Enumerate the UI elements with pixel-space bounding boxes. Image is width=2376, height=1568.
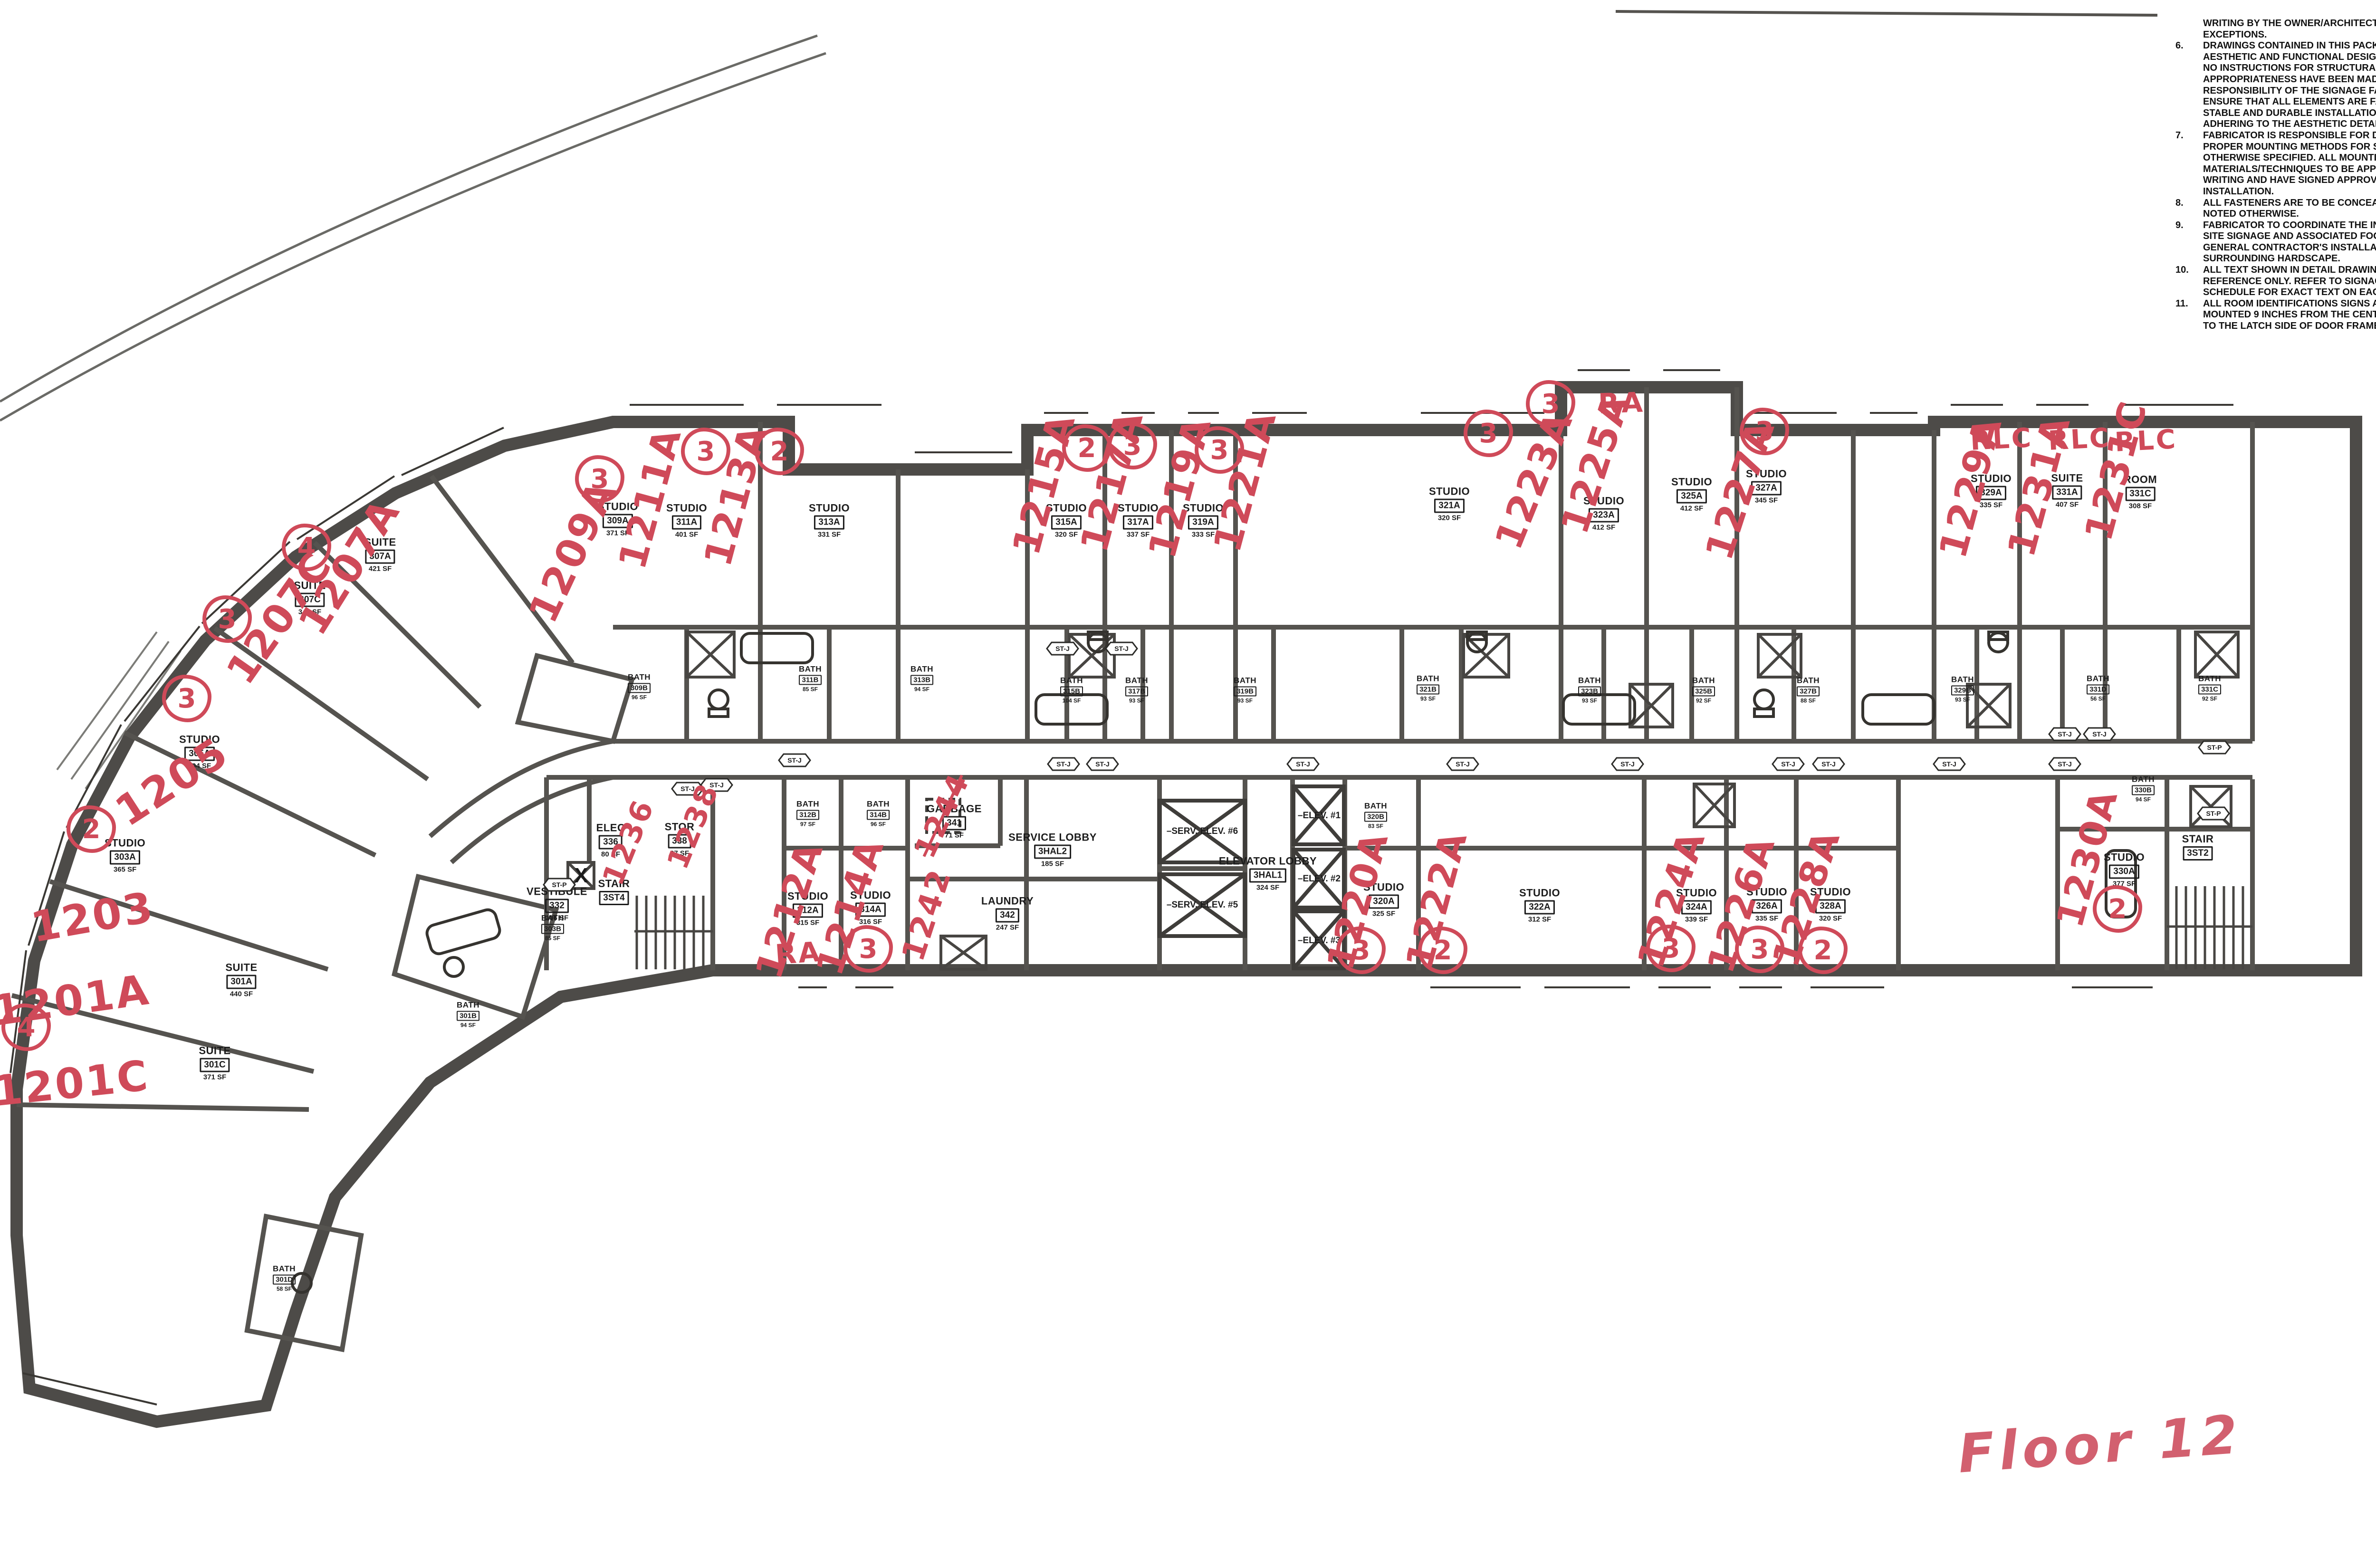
red-room-annotation: RA xyxy=(1598,386,1645,420)
scanned-floorplan-sheet: STUDIO309A371 SFSUITE307A421 SFSUITE307C… xyxy=(0,0,2376,1568)
occupancy-circle: 3 xyxy=(1195,426,1244,474)
unit-area: 371 SF xyxy=(203,1073,226,1081)
unit-area: 94 SF xyxy=(914,686,929,693)
unit-number: 313A xyxy=(814,516,844,530)
unit-number: 321A xyxy=(1434,499,1464,513)
note-text: FABRICATOR TO COORDINATE THE INSTALLATSI… xyxy=(2203,220,2376,265)
note-line: APPROPRIATENESS HAVE BEEN MADE. IT IS T xyxy=(2203,74,2376,86)
occupancy-circle: 3 xyxy=(1646,925,1696,972)
occupancy-circle: 3 xyxy=(681,428,730,475)
bath-label: BATH330B94 SF xyxy=(2132,775,2155,803)
unit-area: 312 SF xyxy=(1528,916,1551,924)
unit-area: 93 SF xyxy=(1237,698,1253,704)
note-line: INSTALLATION. xyxy=(2203,186,2376,198)
note-text: ALL ROOM IDENTIFICATIONS SIGNS ARE TO BM… xyxy=(2203,298,2376,332)
note-line: WRITING AND HAVE SIGNED APPROVAL PRIO xyxy=(2203,175,2376,186)
unit-area: 88 SF xyxy=(1801,698,1816,704)
unit-area: 94 SF xyxy=(2136,796,2151,803)
red-room-annotation: RLC xyxy=(1969,422,2033,457)
bath-label: BATH317B93 SF xyxy=(1125,676,1148,704)
unit-type: BATH xyxy=(1234,676,1256,686)
corridor-tag-st-j: ST-J xyxy=(1446,757,1479,771)
unit-type: BATH xyxy=(1125,676,1148,686)
note-item: 7.FABRICATOR IS RESPONSIBLE FOR DETERMIN… xyxy=(2175,130,2376,198)
svg-text:ST-J: ST-J xyxy=(2058,760,2072,768)
unit-number: 329B xyxy=(1951,686,1974,696)
occupancy-circle: 2 xyxy=(2093,885,2142,933)
unit-number: 330B xyxy=(2132,785,2155,795)
unit-area: 320 SF xyxy=(1438,514,1461,522)
unit-label: STUDIO313A331 SF xyxy=(809,502,850,539)
unit-number: 330A xyxy=(2109,865,2139,879)
unit-number: 301C xyxy=(200,1058,230,1072)
svg-text:ST-J: ST-J xyxy=(1095,760,1110,768)
elevator-label: –ELEV. #1 xyxy=(1298,811,1341,821)
bath-label: BATH312B97 SF xyxy=(796,800,819,828)
unit-label: STUDIO325A412 SF xyxy=(1671,476,1712,513)
unit-number: 325A xyxy=(1677,489,1706,504)
svg-text:ST-J: ST-J xyxy=(1781,760,1795,768)
unit-number: 301D xyxy=(273,1275,296,1285)
unit-label: STUDIO311A401 SF xyxy=(666,502,707,539)
unit-type: BATH xyxy=(799,665,822,674)
unit-type: STUDIO xyxy=(666,502,707,515)
bath-label: BATH325B92 SF xyxy=(1692,676,1715,704)
note-line: GENERAL CONTRACTOR'S INSTALLATION OF T xyxy=(2203,242,2376,254)
bath-label: BATH303B85 SF xyxy=(541,914,564,942)
unit-type: BATH xyxy=(867,800,890,809)
note-item: 6.DRAWINGS CONTAINED IN THIS PACKAGE ARA… xyxy=(2175,40,2376,130)
bath-label: BATH301B94 SF xyxy=(457,1001,479,1029)
unit-type: BATH xyxy=(796,800,819,809)
unit-number: 331C xyxy=(2198,685,2221,695)
unit-type: BATH xyxy=(2087,674,2109,684)
unit-type: SUITE xyxy=(199,1045,230,1057)
unit-type: BATH xyxy=(273,1264,296,1274)
occupancy-circle: 4 xyxy=(1,1004,51,1051)
unit-label: SERVICE LOBBY3HAL2185 SF xyxy=(1008,832,1097,868)
svg-text:ST-P: ST-P xyxy=(2206,810,2221,817)
signage-notes: WRITING BY THE OWNER/ARCHITECT. NOEXCEPT… xyxy=(2175,18,2376,332)
corridor-tag-st-p: ST-P xyxy=(543,878,576,892)
unit-number: 342 xyxy=(996,908,1019,923)
unit-number: 322A xyxy=(1524,900,1554,915)
bath-label: BATH329B93 SF xyxy=(1951,675,1974,703)
bath-label: BATH314B96 SF xyxy=(867,800,890,828)
unit-area: 407 SF xyxy=(2056,501,2079,509)
unit-number: 301A xyxy=(226,975,256,989)
unit-area: 401 SF xyxy=(675,531,698,539)
unit-type: BATH xyxy=(1692,676,1715,686)
unit-type: STUDIO xyxy=(1429,486,1470,498)
occupancy-circle: 3 xyxy=(1740,408,1789,455)
note-line: ALL ROOM IDENTIFICATIONS SIGNS ARE TO B xyxy=(2203,298,2376,310)
svg-text:ST-J: ST-J xyxy=(1942,760,1956,768)
unit-type: BATH xyxy=(1060,676,1083,686)
corridor-tag-st-j: ST-J xyxy=(1046,641,1079,656)
corridor-tag-st-j: ST-J xyxy=(1105,641,1138,656)
elevator-label: –SERV. ELEV. #6 xyxy=(1167,826,1238,837)
unit-type: BATH xyxy=(1797,676,1820,686)
unit-area: 92 SF xyxy=(1696,698,1711,704)
unit-type: BATH xyxy=(2198,674,2221,684)
corridor-tag-st-j: ST-J xyxy=(1772,757,1805,771)
unit-area: 85 SF xyxy=(545,935,560,942)
unit-number: 325B xyxy=(1692,687,1715,697)
unit-type: BATH xyxy=(1951,675,1974,685)
unit-area: 93 SF xyxy=(1582,698,1597,704)
occupancy-circle: 4 xyxy=(282,524,331,571)
corridor-tag-st-j: ST-J xyxy=(1611,757,1644,771)
note-number: 6. xyxy=(2175,40,2203,52)
occupancy-circle: 2 xyxy=(67,805,116,853)
note-line: TO THE LATCH SIDE OF DOOR FRAME. xyxy=(2203,321,2376,332)
bath-label: BATH311B85 SF xyxy=(799,665,822,693)
site-curve-inner xyxy=(0,53,826,421)
unit-number: 327B xyxy=(1797,687,1820,697)
note-item: 10.ALL TEXT SHOWN IN DETAIL DRAWINGS IS … xyxy=(2175,265,2376,298)
unit-area: 412 SF xyxy=(1680,505,1703,513)
note-number: 9. xyxy=(2175,220,2203,231)
occupancy-circle: 3 xyxy=(202,595,252,643)
unit-area: 365 SF xyxy=(114,866,136,874)
unit-type: BATH xyxy=(628,673,651,682)
occupancy-circle: 3 xyxy=(1464,410,1513,457)
unit-type: BATH xyxy=(1364,802,1387,811)
note-line: ENSURE THAT ALL ELEMENTS ARE FABRICATE xyxy=(2203,96,2376,108)
unit-label: ELEVATOR LOBBY3HAL1324 SF xyxy=(1219,855,1317,892)
unit-number: 312B xyxy=(796,810,819,820)
svg-text:ST-J: ST-J xyxy=(1296,760,1310,768)
corridor-tag-st-j: ST-J xyxy=(2048,757,2081,771)
note-text: ALL FASTENERS ARE TO BE CONCEALED UNLENO… xyxy=(2203,198,2376,220)
note-line: ALL FASTENERS ARE TO BE CONCEALED UNLE xyxy=(2203,198,2376,209)
unit-type: BATH xyxy=(541,914,564,923)
unit-number: 311B xyxy=(799,675,821,685)
unit-area: 92 SF xyxy=(2202,696,2217,702)
svg-text:ST-J: ST-J xyxy=(1620,760,1635,768)
unit-type: BATH xyxy=(2132,775,2155,784)
occupancy-circle: 3 xyxy=(1336,927,1386,974)
unit-type: LAUNDRY xyxy=(981,895,1034,908)
unit-area: 324 SF xyxy=(1256,884,1279,892)
unit-type: SUITE xyxy=(225,962,257,974)
elevator-label: –ELEV. #2 xyxy=(1298,874,1341,884)
svg-text:ST-J: ST-J xyxy=(1821,760,1836,768)
unit-type: BATH xyxy=(1417,674,1439,684)
unit-area: 185 SF xyxy=(1041,860,1064,868)
unit-number: 315B xyxy=(1060,687,1083,697)
unit-number: 313B xyxy=(910,675,933,685)
unit-number: 303A xyxy=(110,851,140,865)
occupancy-circle: 2 xyxy=(1418,927,1467,974)
unit-type: STUDIO xyxy=(1519,887,1560,899)
scan-edge-top xyxy=(1616,11,2157,15)
corridor-tag-st-j: ST-J xyxy=(1933,757,1966,771)
corridor-tag-st-p: ST-P xyxy=(2197,806,2230,821)
note-intro-line: WRITING BY THE OWNER/ARCHITECT. NO xyxy=(2203,18,2376,29)
note-item: 11.ALL ROOM IDENTIFICATIONS SIGNS ARE TO… xyxy=(2175,298,2376,332)
unit-area: 104 SF xyxy=(1063,698,1081,704)
bath-label: BATH331C92 SF xyxy=(2198,674,2221,702)
corridor-tag-st-j: ST-J xyxy=(2083,727,2116,741)
red-room-annotation: RLC xyxy=(2114,424,2178,458)
note-number: 10. xyxy=(2175,265,2203,276)
note-number: 11. xyxy=(2175,298,2203,310)
corridor-tag-st-j: ST-J xyxy=(778,753,811,767)
note-text: FABRICATOR IS RESPONSIBLE FOR DETERMINPR… xyxy=(2203,130,2376,198)
site-curve-outer xyxy=(0,36,817,402)
svg-text:ST-P: ST-P xyxy=(552,881,566,889)
note-line: REFERENCE ONLY. REFER TO SIGNAGE MESS xyxy=(2203,276,2376,287)
svg-text:ST-P: ST-P xyxy=(2207,744,2222,751)
unit-label: STUDIO322A312 SF xyxy=(1519,887,1560,924)
unit-area: 93 SF xyxy=(1420,696,1436,702)
unit-type: BATH xyxy=(910,665,933,674)
unit-type: BATH xyxy=(1578,676,1601,686)
unit-label: LAUNDRY342247 SF xyxy=(981,895,1034,932)
unit-type: SERVICE LOBBY xyxy=(1008,832,1097,844)
svg-text:ST-J: ST-J xyxy=(1055,645,1070,652)
occupancy-circle: 3 xyxy=(1735,926,1784,973)
corridor-tag-st-j: ST-J xyxy=(1286,757,1320,771)
bath-label: BATH319B93 SF xyxy=(1234,676,1256,704)
bath-label: BATH323B93 SF xyxy=(1578,676,1601,704)
unit-number: 311A xyxy=(672,516,701,530)
unit-number: 320B xyxy=(1364,812,1387,822)
occupancy-circle: 3 xyxy=(1526,380,1575,428)
note-item: 8.ALL FASTENERS ARE TO BE CONCEALED UNLE… xyxy=(2175,198,2376,220)
note-number: 7. xyxy=(2175,130,2203,142)
unit-area: 96 SF xyxy=(871,821,886,828)
unit-number: 301B xyxy=(457,1011,479,1021)
unit-area: 83 SF xyxy=(1368,823,1383,830)
note-line: SURROUNDING HARDSCAPE. xyxy=(2203,253,2376,265)
note-line: OTHERWISE SPECIFIED. ALL MOUNTING xyxy=(2203,153,2376,164)
unit-number: 303B xyxy=(541,924,564,934)
occupancy-circle: 3 xyxy=(843,925,893,973)
unit-type: STAIR xyxy=(2182,833,2214,845)
red-room-annotation: RA xyxy=(774,936,823,971)
unit-area: 93 SF xyxy=(1955,697,1970,703)
unit-area: 85 SF xyxy=(803,686,818,693)
note-number: 8. xyxy=(2175,198,2203,209)
occupancy-circle: 3 xyxy=(162,675,211,722)
note-line: AESTHETIC AND FUNCTIONAL DESIGN INTENT xyxy=(2203,52,2376,63)
svg-text:ST-J: ST-J xyxy=(787,756,802,764)
unit-number: 331D xyxy=(2087,685,2109,695)
occupancy-circle: 3 xyxy=(575,455,624,503)
note-line: FABRICATOR IS RESPONSIBLE FOR DETERMIN xyxy=(2203,130,2376,142)
note-line: ADHERING TO THE AESTHETIC DETAILS INDIC xyxy=(2203,119,2376,130)
bath-label: BATH301D58 SF xyxy=(273,1264,296,1292)
note-line: STABLE AND DURABLE INSTALLATION WHILE xyxy=(2203,108,2376,119)
unit-area: 97 SF xyxy=(800,821,815,828)
unit-label: SUITE301A440 SF xyxy=(225,962,257,998)
unit-number: 314B xyxy=(867,810,890,820)
corridor-tag-st-j: ST-J xyxy=(2048,727,2081,741)
unit-area: 308 SF xyxy=(2129,502,2152,510)
unit-type: STUDIO xyxy=(1671,476,1712,488)
bath-label: BATH331D56 SF xyxy=(2087,674,2109,702)
unit-number: 321B xyxy=(1417,685,1439,695)
unit-area: 440 SF xyxy=(230,990,253,998)
unit-area: 247 SF xyxy=(996,924,1019,932)
unit-area: 56 SF xyxy=(2090,696,2106,702)
unit-number: 332 xyxy=(545,899,569,913)
note-line: NO INSTRUCTIONS FOR STRUCTURAL xyxy=(2203,63,2376,74)
note-line: ALL TEXT SHOWN IN DETAIL DRAWINGS IS FO xyxy=(2203,265,2376,276)
note-line: MOUNTED 9 INCHES FROM THE CENTER OF T xyxy=(2203,309,2376,321)
note-line: MATERIALS/TECHNIQUES TO BE APPROVED I xyxy=(2203,164,2376,175)
unit-area: 94 SF xyxy=(460,1022,476,1029)
note-line: SITE SIGNAGE AND ASSOCIATED FOOTINGS W xyxy=(2203,231,2376,242)
red-room-annotation: RLC xyxy=(2047,422,2111,457)
svg-text:ST-J: ST-J xyxy=(1114,645,1129,652)
corridor-tag-st-j: ST-J xyxy=(1812,757,1845,771)
bath-label: BATH313B94 SF xyxy=(910,665,933,693)
bath-label: BATH321B93 SF xyxy=(1417,674,1439,702)
note-intro-line: EXCEPTIONS. xyxy=(2203,29,2376,41)
note-line: PROPER MOUNTING METHODS FOR SIGNS U xyxy=(2203,142,2376,153)
unit-number: 3ST2 xyxy=(2183,846,2213,860)
note-line: FABRICATOR TO COORDINATE THE INSTALLAT xyxy=(2203,220,2376,231)
note-text: ALL TEXT SHOWN IN DETAIL DRAWINGS IS FOR… xyxy=(2203,265,2376,298)
unit-number: 317B xyxy=(1125,687,1148,697)
unit-number: 319B xyxy=(1234,687,1256,697)
note-line: NOTED OTHERWISE. xyxy=(2203,209,2376,220)
occupancy-circle: 2 xyxy=(755,428,804,475)
note-line: SCHEDULE FOR EXACT TEXT ON EACH SIGN. xyxy=(2203,287,2376,298)
unit-area: 331 SF xyxy=(818,531,841,539)
svg-text:ST-J: ST-J xyxy=(2092,730,2107,738)
floorplan-drawing xyxy=(0,0,2376,1568)
unit-area: 58 SF xyxy=(277,1286,292,1292)
unit-number: 3ST4 xyxy=(599,891,629,905)
occupancy-circle: 2 xyxy=(1798,927,1848,974)
unit-area: 93 SF xyxy=(1129,698,1144,704)
bath-label: BATH320B83 SF xyxy=(1364,802,1387,830)
plan-mark: X xyxy=(574,864,588,888)
bath-label: BATH327B88 SF xyxy=(1797,676,1820,704)
corridor-tag-st-j: ST-J xyxy=(1047,757,1080,771)
unit-number: 323B xyxy=(1578,687,1601,697)
svg-text:ST-J: ST-J xyxy=(2058,730,2072,738)
unit-type: STUDIO xyxy=(809,502,850,515)
unit-label: STUDIO321A320 SF xyxy=(1429,486,1470,522)
unit-area: 96 SF xyxy=(632,694,647,701)
unit-label: SUITE301C371 SF xyxy=(199,1045,230,1081)
note-item: 9.FABRICATOR TO COORDINATE THE INSTALLAT… xyxy=(2175,220,2376,265)
unit-type: BATH xyxy=(457,1001,479,1010)
corridor-tag-st-p: ST-P xyxy=(2198,740,2231,755)
unit-number: 3HAL1 xyxy=(1249,869,1286,883)
unit-number: 309B xyxy=(628,683,651,693)
note-line: RESPONSIBILITY OF THE SIGNAGE FABRICATO xyxy=(2203,86,2376,97)
corridor-tag-st-j: ST-J xyxy=(1086,757,1119,771)
unit-type: ELEVATOR LOBBY xyxy=(1219,855,1317,868)
occupancy-circle: 3 xyxy=(1108,422,1157,469)
occupancy-circle: 2 xyxy=(1062,424,1111,472)
bath-label: BATH315B104 SF xyxy=(1060,676,1083,704)
note-text: DRAWINGS CONTAINED IN THIS PACKAGE ARAES… xyxy=(2203,40,2376,130)
unit-number: 3HAL2 xyxy=(1034,845,1071,859)
elevator-label: –SERV. ELEV. #5 xyxy=(1167,900,1238,910)
svg-text:ST-J: ST-J xyxy=(1056,760,1071,768)
svg-text:ST-J: ST-J xyxy=(1456,760,1470,768)
unit-label: STAIR3ST2 xyxy=(2182,833,2214,860)
bath-label: BATH309B96 SF xyxy=(628,673,651,701)
note-line: DRAWINGS CONTAINED IN THIS PACKAGE AR xyxy=(2203,40,2376,52)
